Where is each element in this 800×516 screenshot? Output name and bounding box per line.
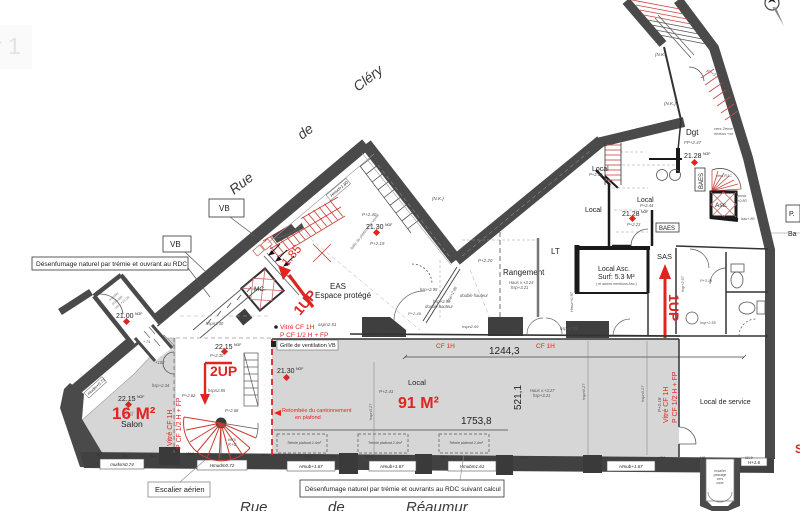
svg-text:111.9: 111.9 [745,456,753,460]
svg-text:21.30: 21.30 [366,224,384,231]
svg-text:P+2.62: P+2.62 [182,393,196,398]
svg-text:Surf: 5.3 M²: Surf: 5.3 M² [598,274,635,281]
svg-text:aspn2.51: aspn2.51 [318,322,337,327]
svg-text:P+2.39: P+2.39 [589,172,603,177]
svg-text:100: 100 [122,454,128,458]
svg-text:MC.: MC. [254,286,266,293]
svg-text:21.30: 21.30 [277,368,295,375]
svg-text:hsp+3.21: hsp+3.21 [511,285,528,290]
svg-text:VB: VB [219,204,230,213]
svg-text:NGF: NGF [137,395,144,399]
svg-text:hsp+2.55: hsp+2.55 [700,321,717,325]
svg-text:P+2.20: P+2.20 [478,258,493,263]
svg-text:91 M²: 91 M² [398,395,439,412]
svg-text:de: de [328,499,345,511]
svg-text:29.1: 29.1 [330,455,336,459]
svg-text:Rue: Rue [240,499,268,511]
svg-text:P+2.23: P+2.23 [627,222,641,227]
svg-text:Local de service: Local de service [700,399,751,406]
svg-text:NGF: NGF [703,152,710,156]
svg-text:28.2: 28.2 [96,453,102,457]
svg-text:hspn3.27: hspn3.27 [368,403,373,420]
svg-text:Asc.: Asc. [715,202,728,209]
svg-text:Hmub+1.67: Hmub+1.67 [380,464,404,469]
svg-text:203.9: 203.9 [520,456,528,460]
svg-text:140: 140 [700,456,706,460]
svg-text:hsp+2.99: hsp+2.99 [420,287,438,292]
svg-text:2UP: 2UP [210,363,237,379]
svg-text:521,1: 521,1 [513,385,524,410]
svg-text:P.: P. [789,211,795,218]
svg-text:cave: cave [716,481,723,485]
svg-text:hsp+2.99: hsp+2.99 [560,326,578,331]
svg-text:150.2: 150.2 [186,452,194,456]
svg-text:203.9: 203.9 [365,455,373,459]
svg-text:CF 1H: CF 1H [536,343,555,350]
svg-text:P+2.19: P+2.19 [370,241,385,246]
svg-text:hspn2.30: hspn2.30 [206,321,224,326]
svg-text:Trémie plafond 2.4m²: Trémie plafond 2.4m² [449,441,484,445]
svg-text:(N.K.): (N.K.) [655,52,667,57]
svg-text:Hmub+1.67: Hmub+1.67 [619,464,643,469]
svg-text:hspn2.55: hspn2.55 [208,388,226,393]
svg-text:VB: VB [170,240,181,249]
svg-text:Dgt: Dgt [686,128,699,137]
svg-text:(N.K.): (N.K.) [432,196,444,201]
svg-text:Réaumur: Réaumur [406,499,469,511]
svg-text:NGF: NGF [296,367,303,371]
svg-text:P CF 1/2 H + FP: P CF 1/2 H + FP [672,371,679,423]
svg-text:Désenfumage naturel par trémie: Désenfumage naturel par trémie et ouvran… [36,261,187,268]
svg-text:r 1: r 1 [0,33,21,59]
svg-text:P+2.41: P+2.41 [379,389,394,394]
svg-text:P+2.30: P+2.30 [210,353,224,358]
svg-text:en plafond: en plafond [295,415,321,421]
svg-text:Hmub+1.67: Hmub+1.67 [299,464,323,469]
svg-text:FP+2.47: FP+2.47 [684,140,702,145]
svg-text:P CF 1/2 H + FP: P CF 1/2 H + FP [176,397,183,449]
svg-text:SAS: SAS [657,252,672,261]
svg-text:hspn3.27: hspn3.27 [640,385,645,402]
svg-text:hsp+2.57: hsp+2.57 [681,275,685,292]
svg-text:1244,3: 1244,3 [489,346,520,357]
svg-text:NGF: NGF [641,210,648,214]
svg-text:Retombée du cantonnement: Retombée du cantonnement [282,408,352,414]
svg-text:(N.K.): (N.K.) [664,101,676,106]
svg-text:Vitré CF 1H: Vitré CF 1H [280,324,315,331]
svg-text:P+2.18: P+2.18 [657,397,662,412]
svg-text:H+1.6: H+1.6 [748,460,761,465]
svg-text:Hmubm1.61: Hmubm1.61 [460,464,485,469]
svg-text:22.15: 22.15 [118,396,136,403]
svg-text:Escalier aérien: Escalier aérien [155,485,205,494]
svg-text:Local: Local [585,207,602,214]
svg-text:BAES: BAES [699,173,705,189]
svg-text:bas+.80: bas+.80 [741,217,756,221]
svg-text:Salon: Salon [121,419,143,429]
svg-text:Vitré CF 1H: Vitré CF 1H [663,387,670,423]
svg-text:hsp+2.34: hsp+2.34 [152,383,170,388]
svg-text:1UP: 1UP [666,294,682,321]
svg-text:LT: LT [551,247,560,256]
svg-text:21.00: 21.00 [116,313,134,320]
svg-text:hspn2.99: hspn2.99 [462,324,479,329]
svg-text:+0.80: +0.80 [737,199,747,203]
svg-text:Hmur+0.97: Hmur+0.97 [569,291,574,312]
svg-text:P+2.40: P+2.40 [362,212,377,217]
svg-text:double hauteur: double hauteur [460,293,489,298]
svg-text:S: S [795,442,800,456]
svg-text:710: 710 [660,456,666,460]
svg-text:CF 1H: CF 1H [436,343,455,350]
svg-text:55.1: 55.1 [232,453,238,457]
svg-text:205.9: 205.9 [440,455,448,459]
svg-text:hspn3.27: hspn3.27 [581,383,586,400]
svg-text:+102: +102 [155,360,165,365]
svg-text:niveau +xx: niveau +xx [714,131,734,136]
svg-text:Grille de ventilation VB: Grille de ventilation VB [280,343,336,349]
svg-text:mudsm0.74: mudsm0.74 [110,462,134,467]
svg-text:Hmudm0.72: Hmudm0.72 [210,463,235,468]
svg-text:hsp+3.21: hsp+3.21 [533,393,550,398]
svg-text:Local: Local [408,378,426,387]
svg-text:P CF 1/2 H + FP: P CF 1/2 H + FP [280,332,329,339]
svg-text:( et autres mentions Asc.): ( et autres mentions Asc.) [596,282,637,286]
svg-text:hmsb: hmsb [737,194,746,198]
svg-text:61.4: 61.4 [305,455,311,459]
svg-text:1753,8: 1753,8 [461,416,492,427]
svg-text:Vitré CF 1H: Vitré CF 1H [167,410,174,446]
svg-text:vers R1C: vers R1C [716,174,732,178]
svg-text:Trémie plafond 2.4m²: Trémie plafond 2.4m² [368,441,403,445]
svg-text:21.28: 21.28 [684,153,702,160]
svg-text:P+2.44: P+2.44 [640,203,654,208]
svg-text:NGF: NGF [135,312,142,316]
svg-text:P+3.18: P+3.18 [700,279,713,283]
svg-text:+.74: +.74 [143,340,150,344]
svg-text:R+C: R+C [228,442,237,447]
svg-text:Local Asc.: Local Asc. [598,266,630,273]
svg-text:Ba: Ba [788,231,797,238]
svg-text:P+2.68: P+2.68 [225,408,239,413]
svg-text:206.9: 206.9 [600,456,608,460]
svg-text:92.1: 92.1 [150,454,156,458]
svg-text:Espace protégé: Espace protégé [315,291,372,300]
svg-text:BAES: BAES [659,226,675,232]
svg-text:NGF: NGF [234,343,241,347]
svg-text:Désenfumage naturel par trémie: Désenfumage naturel par trémie et ouvran… [305,486,501,493]
svg-text:P+2.49: P+2.49 [408,311,422,316]
svg-text:92.1: 92.1 [262,453,268,457]
svg-text:NGF: NGF [385,223,392,227]
svg-text:EAS: EAS [330,282,346,291]
svg-text:Trémie plafond 2.4m²: Trémie plafond 2.4m² [287,441,322,445]
svg-text:double hauteur: double hauteur [425,304,454,309]
